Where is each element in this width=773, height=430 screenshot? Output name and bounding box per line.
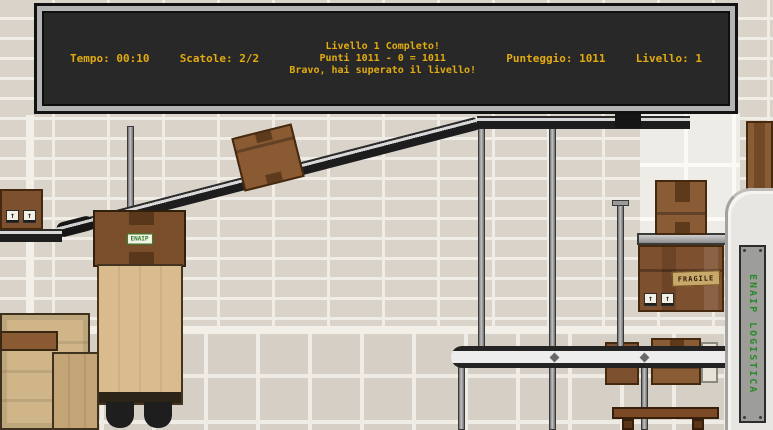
wooden-crate-small bbox=[52, 352, 99, 430]
handling-icons: ↑ ↑ bbox=[6, 210, 36, 223]
game-canvas[interactable]: FRAGILE ↑ ↑ ↑ ↑ bbox=[0, 0, 773, 430]
wheel bbox=[144, 402, 172, 428]
wheel bbox=[106, 402, 134, 428]
hud-message-line3: Bravo, hai superato il livello! bbox=[289, 65, 476, 77]
conveyor-left bbox=[0, 229, 62, 242]
conveyor-leg bbox=[641, 366, 648, 430]
enaip-label: ENAIP bbox=[126, 233, 152, 244]
box-tape bbox=[675, 182, 690, 202]
hud-livello: Livello: 1 bbox=[636, 52, 702, 65]
screw-icon bbox=[759, 249, 762, 252]
box-tape bbox=[675, 222, 690, 233]
table-leg bbox=[622, 419, 634, 430]
cardboard-box-fragile[interactable]: FRAGILE ↑ ↑ bbox=[638, 245, 724, 312]
hud-punteggio: Punteggio: 1011 bbox=[506, 52, 605, 65]
hopper-machine[interactable]: ENAIP bbox=[93, 210, 186, 267]
table-leg bbox=[692, 419, 704, 430]
hud-panel: Tempo: 00:10 Scatole: 2/2 Livello 1 Comp… bbox=[34, 3, 738, 114]
box-flap-line bbox=[657, 212, 705, 215]
pole-cap bbox=[612, 200, 629, 206]
hud-inner-panel: Tempo: 00:10 Scatole: 2/2 Livello 1 Comp… bbox=[42, 11, 730, 106]
screw-icon bbox=[743, 416, 746, 419]
support-pole bbox=[127, 126, 134, 216]
belt-joint bbox=[640, 353, 650, 363]
support-pole bbox=[617, 204, 624, 350]
hopper-tab bbox=[129, 212, 154, 225]
cardboard-box-tall[interactable] bbox=[655, 180, 707, 235]
cardboard-box-arrows[interactable]: ↑ ↑ bbox=[0, 189, 43, 230]
hud-scatole: Scatole: 2/2 bbox=[180, 52, 259, 65]
hud-level-complete-message: Livello 1 Completo! Punti 1011 - 0 = 101… bbox=[289, 41, 476, 77]
support-pole bbox=[478, 126, 485, 350]
screw-icon bbox=[759, 416, 762, 419]
pillar-sign: ENAIP LOGISTICA bbox=[747, 274, 758, 394]
hud-message-line2: Punti 1011 - 0 = 1011 bbox=[289, 53, 476, 65]
wooden-plank bbox=[0, 331, 58, 351]
conveyor-top bbox=[477, 116, 690, 129]
support-pole bbox=[549, 126, 556, 430]
pillar: ENAIP LOGISTICA bbox=[725, 188, 773, 430]
this-way-up-icon: ↑ bbox=[644, 293, 657, 306]
box-tape bbox=[265, 171, 283, 184]
wooden-table bbox=[612, 407, 719, 419]
pillar-plaque: ENAIP LOGISTICA bbox=[739, 245, 766, 423]
handling-icons: ↑ ↑ bbox=[644, 293, 674, 306]
screw-icon bbox=[743, 249, 746, 252]
hud-message-line1: Livello 1 Completo! bbox=[289, 41, 476, 53]
this-way-up-icon: ↑ bbox=[23, 210, 36, 223]
hud-tempo: Tempo: 00:10 bbox=[70, 52, 149, 65]
conveyor-leg bbox=[458, 366, 465, 430]
bin-cart[interactable] bbox=[97, 264, 183, 405]
belt-joint bbox=[550, 353, 560, 363]
this-way-up-icon: ↑ bbox=[6, 210, 19, 223]
fragile-tape-label: FRAGILE bbox=[672, 270, 720, 287]
this-way-up-icon: ↑ bbox=[661, 293, 674, 306]
